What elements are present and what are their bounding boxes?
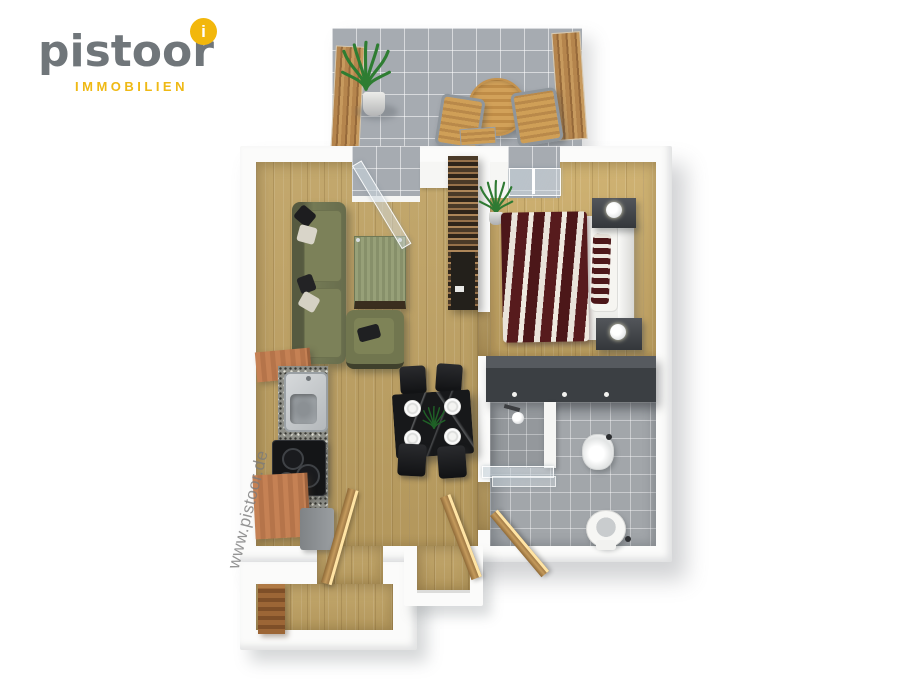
balcony-chair-right <box>510 87 564 148</box>
balcony-footrest <box>459 127 496 146</box>
wardrobe-knob-3 <box>604 392 609 397</box>
toilet-brush <box>625 536 631 542</box>
lamp-bottom <box>610 324 626 340</box>
media-shelf <box>451 252 475 310</box>
bed-pillow-striped <box>591 234 611 305</box>
bathroom-divider-wall <box>544 402 556 468</box>
logo-subtitle: IMMOBILIEN <box>38 79 188 94</box>
bedroom-window-glass <box>509 168 561 196</box>
dining-chair-bottom-right <box>437 445 467 479</box>
lamp-top <box>606 202 622 218</box>
kitchen-appliance-front <box>300 508 334 550</box>
entry-step-line <box>417 590 470 593</box>
kitchen-faucet <box>306 376 311 381</box>
wardrobe-knob-1 <box>512 392 517 397</box>
shower-glass-panel-2 <box>492 476 556 487</box>
logo-info-icon: i <box>190 18 217 45</box>
dining-centerpiece-plant-icon <box>422 406 446 430</box>
logo: pistoor i IMMOBILIEN <box>38 28 238 94</box>
wardrobe-knob-2 <box>562 392 567 397</box>
coffee-table <box>354 236 406 309</box>
entrance-cabinet <box>258 584 285 634</box>
kitchen-sink-basin <box>290 394 317 424</box>
floorplan-rendering: www.pistoor.de pistoor i IMMOBILIEN <box>0 0 907 680</box>
balcony-plant-icon <box>340 38 392 96</box>
bed-blanket <box>501 211 589 342</box>
bedroom-window-mullion <box>532 168 535 194</box>
plate-top-right <box>444 398 461 415</box>
toilet-cistern <box>596 540 616 550</box>
bathroom-doorway <box>478 482 490 530</box>
sink-faucet <box>606 434 612 440</box>
bedroom-doorway <box>478 312 490 356</box>
dining-chair-top-left <box>399 365 426 394</box>
wall-pier-left <box>420 162 448 188</box>
media-device <box>455 286 464 292</box>
coffee-table-fitting-left <box>356 238 360 242</box>
dining-chair-top-right <box>435 363 463 393</box>
plate-bottom-right <box>444 428 461 445</box>
plate-top-left <box>404 400 421 417</box>
shower-head <box>512 412 524 424</box>
dining-chair-bottom-left <box>397 443 427 476</box>
